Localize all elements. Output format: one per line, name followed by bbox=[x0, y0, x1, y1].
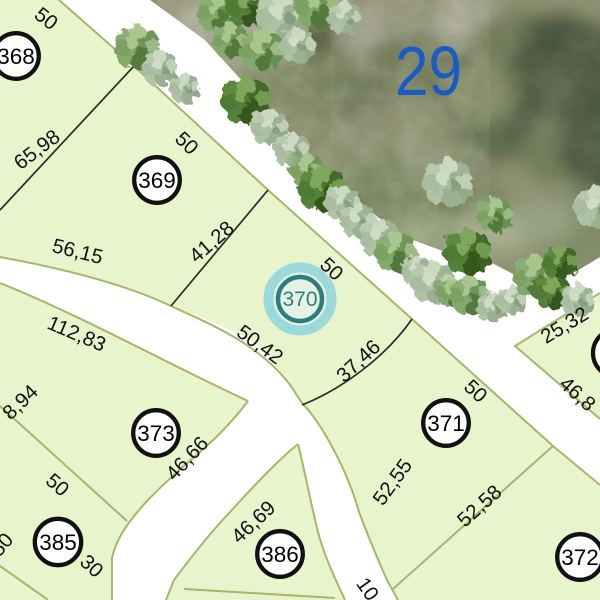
svg-text:386: 386 bbox=[261, 542, 299, 567]
svg-text:373: 373 bbox=[137, 421, 175, 446]
svg-text:371: 371 bbox=[427, 411, 465, 436]
svg-text:368: 368 bbox=[0, 44, 35, 69]
svg-text:10: 10 bbox=[351, 573, 383, 600]
svg-text:370: 370 bbox=[282, 288, 317, 311]
svg-text:372: 372 bbox=[561, 545, 599, 570]
svg-text:385: 385 bbox=[39, 530, 77, 555]
svg-text:29: 29 bbox=[395, 32, 462, 110]
svg-text:369: 369 bbox=[138, 168, 176, 193]
